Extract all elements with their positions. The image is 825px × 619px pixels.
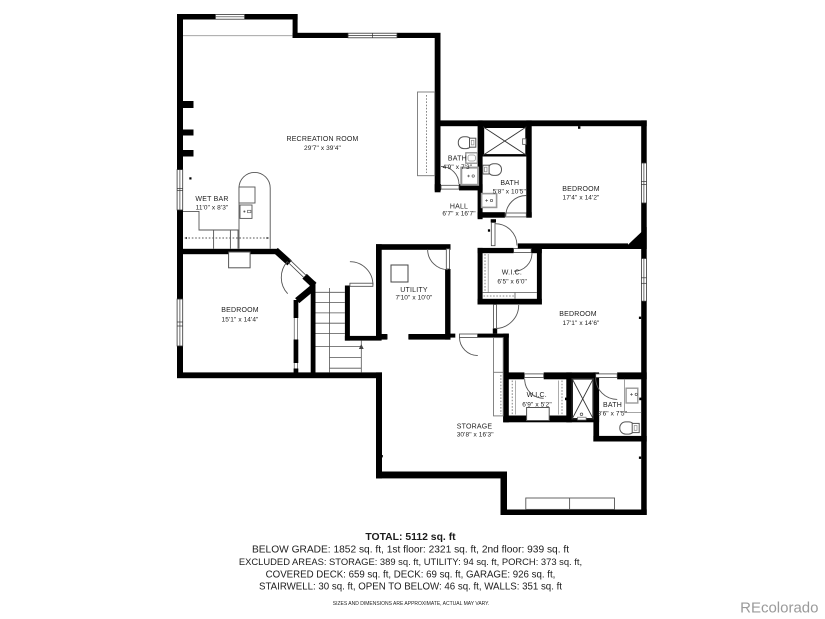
svg-text:6'5" x 6'0": 6'5" x 6'0" — [497, 278, 527, 285]
svg-text:EXCLUDED AREAS: STORAGE: 389 s: EXCLUDED AREAS: STORAGE: 389 sq. ft, UTI… — [239, 556, 582, 567]
svg-text:BELOW GRADE: 1852 sq. ft, 1st: BELOW GRADE: 1852 sq. ft, 1st floor: 232… — [252, 545, 569, 556]
svg-text:STORAGE: STORAGE — [457, 424, 493, 431]
svg-text:TOTAL: 5112 sq. ft: TOTAL: 5112 sq. ft — [365, 532, 456, 543]
svg-text:STAIRWELL: 30 sq. ft, OPEN TO: STAIRWELL: 30 sq. ft, OPEN TO BELOW: 46 … — [259, 582, 562, 593]
svg-text:17'1" x 14'6": 17'1" x 14'6" — [563, 320, 601, 327]
svg-text:SIZES AND DIMENSIONS ARE APPRO: SIZES AND DIMENSIONS ARE APPROXIMATE, AC… — [333, 601, 490, 607]
svg-text:4'9" x 7'3": 4'9" x 7'3" — [443, 164, 473, 171]
svg-text:BATH: BATH — [500, 180, 519, 187]
svg-text:15'1" x 14'4": 15'1" x 14'4" — [222, 316, 260, 323]
svg-text:30'8" x 16'3": 30'8" x 16'3" — [457, 432, 495, 439]
svg-text:6'7" x 16'7": 6'7" x 16'7" — [442, 211, 476, 218]
svg-text:6'9" x 5'2": 6'9" x 5'2" — [522, 402, 552, 409]
svg-text:5'8" x 10'5": 5'8" x 10'5" — [493, 188, 527, 195]
svg-text:BEDROOM: BEDROOM — [562, 186, 600, 193]
svg-text:W.I.C.: W.I.C. — [527, 392, 547, 399]
svg-text:UTILITY: UTILITY — [400, 287, 428, 294]
svg-text:BEDROOM: BEDROOM — [559, 311, 597, 318]
svg-text:8'6" x 7'5": 8'6" x 7'5" — [598, 410, 628, 417]
svg-text:REcolorado: REcolorado — [740, 600, 818, 617]
svg-text:RECREATION ROOM: RECREATION ROOM — [286, 136, 358, 143]
svg-text:COVERED DECK: 659 sq. ft, DECK: COVERED DECK: 659 sq. ft, DECK: 69 sq. f… — [266, 569, 556, 580]
svg-text:11'0" x 8'3": 11'0" x 8'3" — [196, 204, 229, 211]
svg-text:WET BAR: WET BAR — [195, 196, 228, 203]
svg-text:17'4" x 14'2": 17'4" x 14'2" — [563, 195, 601, 202]
svg-text:BEDROOM: BEDROOM — [221, 307, 259, 314]
svg-text:BATH: BATH — [603, 402, 622, 409]
svg-text:W.I.C.: W.I.C. — [502, 270, 522, 277]
svg-text:HALL: HALL — [450, 204, 468, 211]
svg-text:29'7" x 39'4": 29'7" x 39'4" — [304, 145, 342, 152]
svg-text:BATH: BATH — [448, 155, 467, 162]
svg-text:7'10" x 10'0": 7'10" x 10'0" — [396, 294, 434, 301]
